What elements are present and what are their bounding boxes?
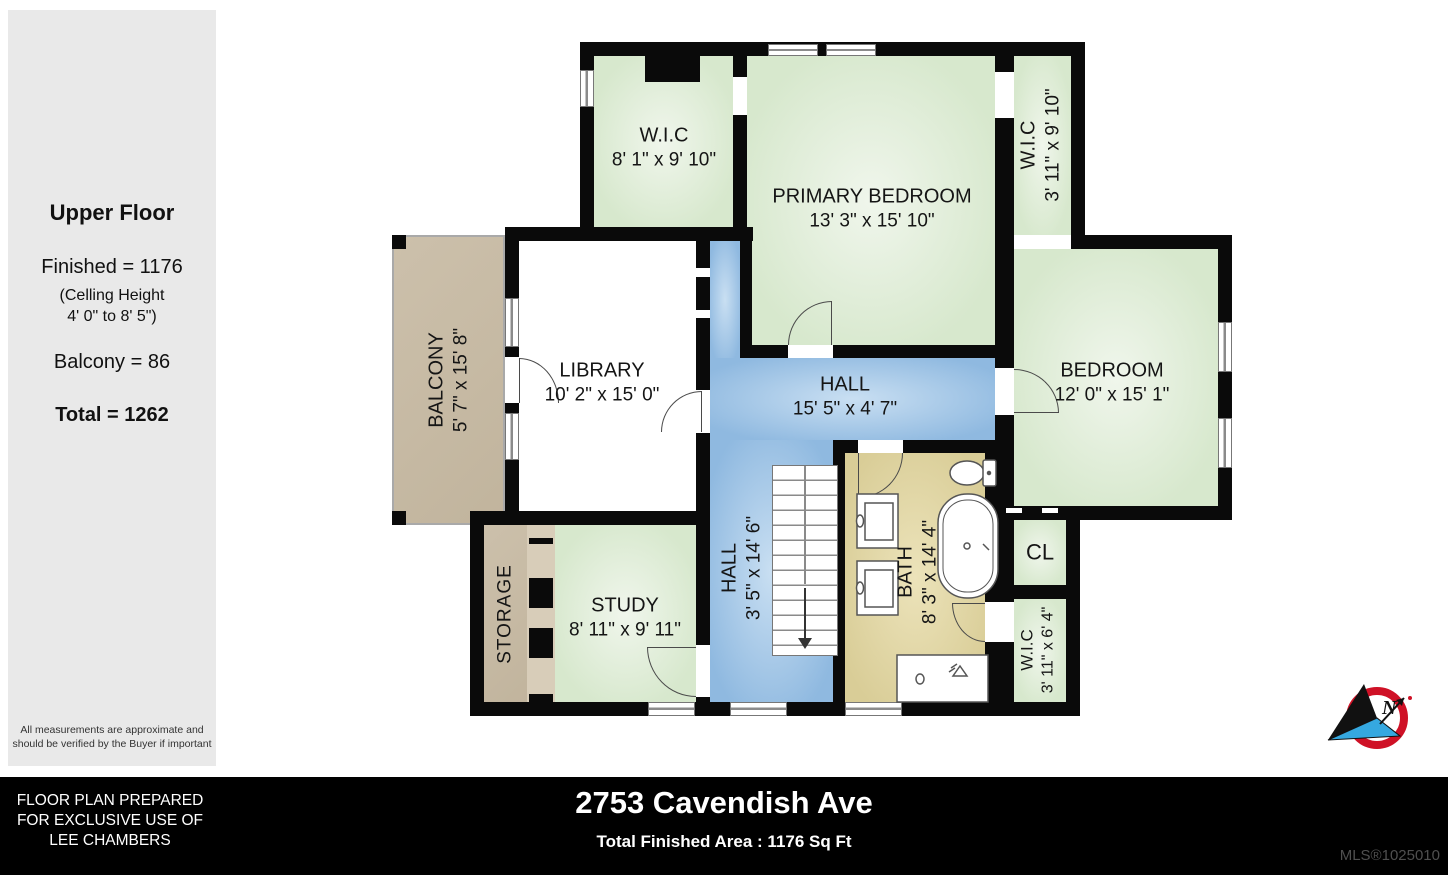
wall bbox=[470, 702, 648, 716]
label-wic-top-left: W.I.C 8' 1" x 9' 10" bbox=[612, 123, 716, 174]
total-finished-area: Total Finished Area : 1176 Sq Ft bbox=[0, 832, 1448, 852]
door-arc-library bbox=[661, 391, 702, 432]
wall bbox=[1218, 235, 1232, 322]
wall bbox=[696, 525, 710, 645]
storage-divider bbox=[527, 525, 555, 702]
stair-down-arrow bbox=[804, 588, 806, 640]
ceiling-height-line1: (Celling Height bbox=[8, 287, 216, 305]
balcony-post bbox=[392, 235, 406, 249]
wall bbox=[505, 347, 519, 357]
label-library: LIBRARY 10' 2" x 15' 0" bbox=[545, 358, 660, 409]
wall bbox=[733, 115, 747, 241]
wall bbox=[1071, 42, 1085, 249]
window bbox=[730, 702, 787, 716]
door-jamb bbox=[696, 310, 710, 318]
window bbox=[826, 44, 876, 56]
label-bedroom: BEDROOM 12' 0" x 15' 1" bbox=[1055, 358, 1170, 409]
wall bbox=[470, 511, 484, 716]
ceiling-height-line2: 4' 0" to 8' 5") bbox=[8, 308, 216, 326]
chimney-notch bbox=[645, 56, 700, 82]
wall bbox=[696, 697, 710, 716]
window bbox=[580, 70, 594, 107]
wall bbox=[696, 277, 710, 310]
door-opening bbox=[995, 72, 1014, 118]
hall-strip bbox=[710, 241, 740, 358]
staircase bbox=[772, 465, 838, 656]
finished-area-text: Finished = 1176 bbox=[8, 256, 216, 279]
disclaimer-line2: should be verified by the Buyer if impor… bbox=[8, 738, 216, 750]
door-opening bbox=[995, 368, 1014, 415]
wall bbox=[1066, 506, 1080, 716]
window bbox=[1218, 418, 1232, 468]
wall bbox=[995, 118, 1014, 368]
door-opening bbox=[788, 345, 833, 358]
footer-bar: FLOOR PLAN PREPARED FOR EXCLUSIVE USE OF… bbox=[0, 777, 1448, 875]
floor-title: Upper Floor bbox=[8, 200, 216, 226]
window bbox=[648, 702, 695, 716]
wall bbox=[505, 403, 519, 413]
balcony-area-text: Balcony = 86 bbox=[8, 351, 216, 374]
mls-watermark: MLS®1025010 bbox=[1340, 847, 1440, 864]
door-jamb bbox=[696, 268, 710, 277]
wall bbox=[696, 318, 710, 390]
wall bbox=[696, 433, 710, 525]
wall bbox=[740, 345, 788, 358]
window bbox=[505, 298, 519, 347]
window bbox=[1218, 322, 1232, 372]
label-primary-bedroom: PRIMARY BEDROOM 13' 3" x 15' 10" bbox=[772, 184, 971, 235]
closet-door-jamb bbox=[1042, 508, 1058, 513]
label-closet: CL bbox=[1026, 539, 1054, 568]
wall bbox=[1218, 372, 1232, 418]
wall bbox=[995, 56, 1014, 72]
label-hall: HALL 15' 5" x 4' 7" bbox=[793, 372, 897, 423]
door-opening bbox=[733, 77, 747, 115]
door-opening bbox=[696, 645, 710, 697]
wall bbox=[580, 107, 594, 241]
balcony-post bbox=[392, 511, 406, 525]
compass-n-label: N bbox=[1381, 697, 1398, 719]
closet-door-jamb bbox=[1006, 508, 1022, 513]
shower-icon bbox=[897, 655, 988, 702]
label-wic-top-right: W.I.C 3' 11" x 9' 10" bbox=[1016, 88, 1067, 201]
wall bbox=[505, 227, 519, 298]
door-opening bbox=[505, 357, 519, 403]
total-area-text: Total = 1262 bbox=[8, 404, 216, 427]
disclaimer-line1: All measurements are approximate and bbox=[8, 724, 216, 736]
label-balcony: BALCONY 5' 7" x 15' 8" bbox=[424, 328, 475, 432]
label-hall-stairs: HALL 3' 5" x 14' 6" bbox=[717, 516, 768, 620]
wall bbox=[696, 241, 710, 268]
wall bbox=[787, 702, 845, 716]
window bbox=[768, 44, 818, 56]
sidebar-panel: Upper Floor Finished = 1176 (Celling Hei… bbox=[8, 10, 216, 766]
window bbox=[505, 413, 519, 460]
wall bbox=[1071, 235, 1232, 249]
label-storage: STORAGE bbox=[494, 564, 519, 664]
dashed-wall bbox=[529, 628, 553, 658]
floor-plan-page: Upper Floor Finished = 1176 (Celling Hei… bbox=[0, 0, 1448, 875]
wall bbox=[1000, 585, 1080, 599]
wall bbox=[1000, 506, 1232, 520]
address-title: 2753 Cavendish Ave bbox=[0, 785, 1448, 821]
stair-down-arrowhead bbox=[798, 638, 812, 649]
toilet-icon bbox=[950, 461, 984, 485]
dashed-wall bbox=[529, 538, 553, 544]
stair-rail bbox=[804, 466, 806, 584]
wall bbox=[580, 56, 594, 70]
dashed-wall bbox=[529, 578, 553, 608]
label-wic-bottom: W.I.C 3' 11" x 6' 4" bbox=[1017, 607, 1060, 694]
wall bbox=[833, 345, 1000, 358]
wall bbox=[505, 460, 519, 525]
label-study: STUDY 8' 11" x 9' 11" bbox=[569, 593, 681, 644]
label-bath: BATH 8' 3" x 14' 4" bbox=[893, 520, 944, 624]
wall bbox=[505, 227, 753, 241]
wall bbox=[733, 56, 747, 77]
north-compass-icon: N bbox=[1320, 678, 1420, 762]
wall bbox=[740, 241, 752, 345]
